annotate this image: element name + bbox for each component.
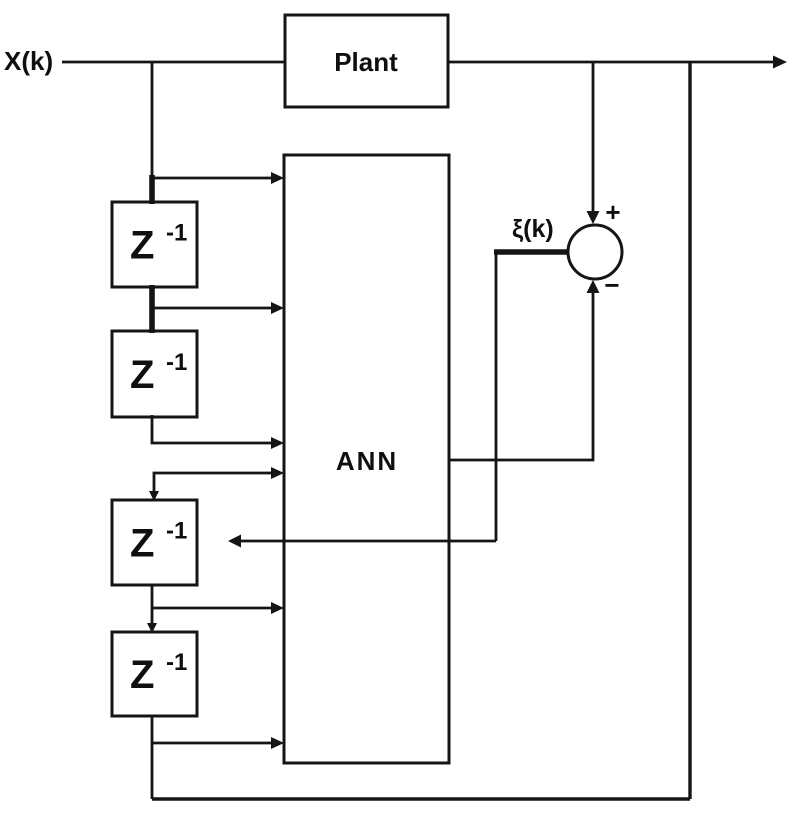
ann-arrow-x2-icon: [271, 437, 284, 449]
ann-arrow-y0-icon: [271, 737, 284, 749]
delay-3-exponent: -1: [166, 518, 187, 545]
delay-3-base: Z: [130, 522, 154, 566]
sum-minus-sign: −: [604, 270, 619, 300]
delay-2-exponent: -1: [166, 349, 187, 376]
ann-arrow-y2-icon: [271, 467, 284, 479]
error-label: ξ(k): [512, 215, 554, 243]
output-arrow-icon: [773, 56, 787, 69]
ann-input-tap-y2: [154, 473, 272, 501]
sum-plus-arrow-icon: [587, 211, 600, 224]
input-label: X(k): [4, 46, 53, 76]
error-feedback-arrow-icon: [228, 535, 241, 548]
plant-label: Plant: [334, 47, 398, 77]
diagram-canvas: X(k) Plant ANN ξ(k) + − Z -1 Z -1 Z -1 Z…: [0, 0, 789, 814]
ann-arrow-x0-icon: [271, 172, 284, 184]
sum-minus-arrow-icon: [587, 280, 600, 293]
delay-4-exponent: -1: [166, 649, 187, 676]
ann-arrow-x1-icon: [271, 302, 284, 314]
ann-label: ANN: [336, 446, 398, 476]
sum-plus-sign: +: [605, 197, 620, 227]
ann-input-tap-x2: [152, 415, 272, 443]
delay-1-exponent: -1: [166, 220, 187, 247]
block-diagram: X(k) Plant ANN ξ(k) + − Z -1 Z -1 Z -1 Z…: [0, 0, 789, 814]
delay-2-base: Z: [130, 353, 154, 397]
ann-output-wire: [448, 292, 593, 460]
ann-arrow-y1-icon: [271, 602, 284, 614]
delay-1-base: Z: [130, 224, 154, 268]
delay-4-base: Z: [130, 653, 154, 697]
